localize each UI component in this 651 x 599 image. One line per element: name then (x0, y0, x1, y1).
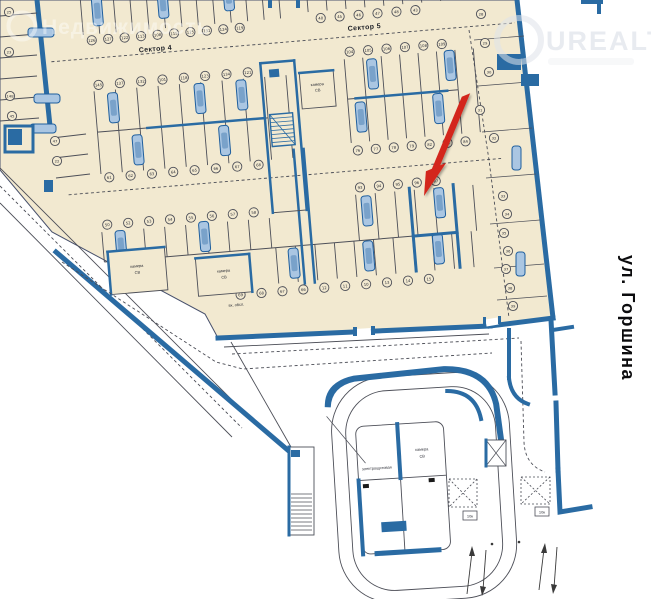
svg-text:СВ: СВ (134, 270, 140, 275)
stall-number: 107 (400, 42, 410, 52)
stall-number: 62 (126, 171, 136, 181)
svg-text:39: 39 (511, 304, 516, 309)
stall-number: 48 (391, 7, 401, 17)
stall-number: 36 (503, 246, 512, 255)
stall-number: 47 (50, 136, 59, 145)
stall-number: 95 (393, 179, 403, 189)
svg-text:37: 37 (504, 267, 509, 272)
stall-number: 108 (418, 41, 428, 51)
stall-number: 22 (52, 156, 61, 165)
parking-floor-plan: Сектор 4 Сектор 5 1261271221131081151251… (0, 0, 651, 599)
stall-number: 82 (425, 139, 435, 149)
stall-number: 76 (353, 145, 363, 155)
stall-number: 148 (5, 91, 14, 100)
stall-number: 68 (257, 288, 267, 298)
svg-text:148: 148 (6, 94, 14, 99)
street-label: ул. Горшина (618, 255, 638, 381)
svg-text:10к: 10к (467, 514, 473, 519)
stall-number: 119 (235, 23, 245, 33)
car (218, 125, 230, 156)
svg-text:101: 101 (159, 77, 167, 83)
car (361, 195, 373, 226)
stair-shaft (289, 447, 314, 535)
svg-text:34: 34 (505, 212, 510, 217)
stall-number: 137 (115, 78, 125, 88)
svg-text:29: 29 (483, 41, 488, 46)
stall-number: 67 (277, 286, 287, 296)
svg-text:47: 47 (53, 139, 58, 144)
svg-text:23: 23 (7, 50, 12, 55)
stall-number: 50 (102, 220, 112, 230)
stall-number: 61 (104, 172, 114, 182)
svg-text:109: 109 (438, 41, 446, 47)
car (107, 92, 119, 123)
stall-number: 63 (147, 169, 157, 179)
svg-text:СВ: СВ (419, 453, 425, 458)
stall-number: 33 (498, 191, 507, 200)
camera-room: камера СВ (108, 247, 168, 295)
stall-number: 34 (502, 209, 511, 218)
stall-number: 46 (354, 10, 364, 20)
svg-text:28: 28 (479, 12, 484, 17)
svg-text:105: 105 (364, 47, 372, 53)
marker-box: 10к (535, 507, 549, 516)
svg-text:108: 108 (420, 43, 428, 49)
svg-text:45: 45 (10, 114, 15, 119)
stall-number: 66 (298, 284, 308, 294)
stall-number: 106 (382, 44, 392, 54)
stall-number: 12 (319, 283, 329, 293)
stall-number: 124 (218, 24, 228, 34)
traffic-arrows (467, 541, 557, 596)
stall-number: 15 (424, 274, 434, 284)
svg-text:UREALT: UREALT (546, 26, 651, 56)
stall-number: 132 (136, 76, 146, 86)
stall-number: 101 (158, 75, 168, 85)
stall-number: 55 (186, 213, 196, 223)
stall-number: 47 (373, 8, 383, 18)
stall-number: 96 (412, 178, 422, 188)
stall-number: 53 (144, 216, 154, 226)
stall-number: 78 (389, 142, 399, 152)
stall-number: 105 (363, 45, 373, 55)
stall-number: 45 (335, 12, 345, 22)
svg-text:35: 35 (502, 231, 507, 236)
stall-number: 109 (437, 39, 447, 49)
svg-text:38: 38 (508, 286, 513, 291)
stall-number: 54 (165, 214, 175, 224)
svg-text:30: 30 (487, 70, 492, 75)
svg-text:33: 33 (501, 194, 506, 199)
stall-number: 123 (200, 71, 210, 81)
stall-number: 84 (461, 136, 471, 146)
stall-number: 14 (403, 276, 413, 286)
svg-text:123: 123 (201, 73, 209, 79)
stall-number: 67 (232, 162, 242, 172)
svg-text:СВ: СВ (221, 274, 227, 279)
stall-number: 118 (179, 73, 189, 83)
stall-number: 68 (254, 160, 264, 170)
stall-number: 104 (345, 47, 355, 57)
car (432, 93, 444, 124)
car (432, 234, 444, 265)
svg-text:121: 121 (244, 70, 252, 76)
svg-text:134: 134 (223, 71, 231, 77)
car (132, 134, 144, 165)
car (444, 50, 456, 81)
svg-text:Недвижимость: Недвижимость (42, 16, 210, 39)
svg-text:камера: камера (415, 446, 429, 452)
stall-number: 38 (505, 283, 514, 292)
stall-number: 10 (361, 279, 371, 289)
stall-number: 65 (190, 165, 200, 175)
stall-number: 35 (499, 228, 508, 237)
svg-text:32: 32 (492, 136, 497, 141)
stall-number: 31 (475, 105, 484, 114)
svg-text:10к: 10к (539, 510, 545, 515)
camera-room: камера СВ (195, 254, 252, 296)
stall-number: 56 (207, 211, 217, 221)
stall-number: 43 (410, 5, 420, 15)
svg-text:36: 36 (506, 249, 511, 254)
stall-number: 57 (228, 209, 238, 219)
ramp-hatch-box (521, 477, 550, 504)
stall-number: 64 (168, 167, 178, 177)
stall-number: 40 (316, 13, 326, 23)
stall-number: 94 (374, 181, 384, 191)
car (363, 241, 375, 272)
svg-text:22: 22 (55, 159, 60, 164)
stall-number: 58 (249, 207, 259, 217)
stall-number: 79 (407, 141, 417, 151)
svg-text:104: 104 (346, 49, 354, 55)
elevator-shaft (486, 440, 506, 466)
stall-number: 121 (243, 67, 253, 77)
stall-number: 39 (508, 301, 517, 310)
stall-number: 13 (382, 277, 392, 287)
stall-number: 37 (501, 264, 510, 273)
stall-number: 145 (94, 80, 104, 90)
svg-text:145: 145 (95, 82, 103, 88)
car (288, 248, 300, 279)
svg-text:119: 119 (236, 25, 244, 31)
svg-text:25: 25 (7, 10, 12, 15)
svg-text:132: 132 (137, 78, 145, 84)
svg-text:137: 137 (116, 80, 124, 86)
car (366, 59, 378, 90)
ramp-hatch-box (449, 479, 477, 507)
stall-number: 77 (371, 144, 381, 154)
car (198, 221, 210, 252)
svg-text:106: 106 (383, 46, 391, 52)
svg-text:107: 107 (401, 44, 409, 50)
stall-number: 93 (355, 182, 365, 192)
stall-number: 11 (340, 281, 350, 291)
stall-number: 29 (480, 38, 489, 47)
stall-number: 28 (476, 9, 485, 18)
stall-number: 134 (221, 69, 231, 79)
stall-number: 32 (489, 133, 498, 142)
stall-number: 30 (484, 67, 493, 76)
svg-text:СВ: СВ (315, 87, 321, 92)
entrance-building: электрощитовая камера СВ (324, 365, 520, 599)
svg-text:118: 118 (180, 75, 188, 81)
car (236, 80, 248, 111)
car (433, 187, 445, 218)
stall-number: 66 (211, 163, 221, 173)
car (194, 83, 206, 114)
svg-text:31: 31 (478, 108, 483, 113)
car (355, 102, 367, 133)
marker-box: 10к (463, 511, 477, 520)
stall-number: 52 (123, 218, 133, 228)
stall-number: 23 (4, 47, 13, 56)
stall-number: 45 (7, 111, 16, 120)
svg-text:124: 124 (219, 26, 227, 32)
